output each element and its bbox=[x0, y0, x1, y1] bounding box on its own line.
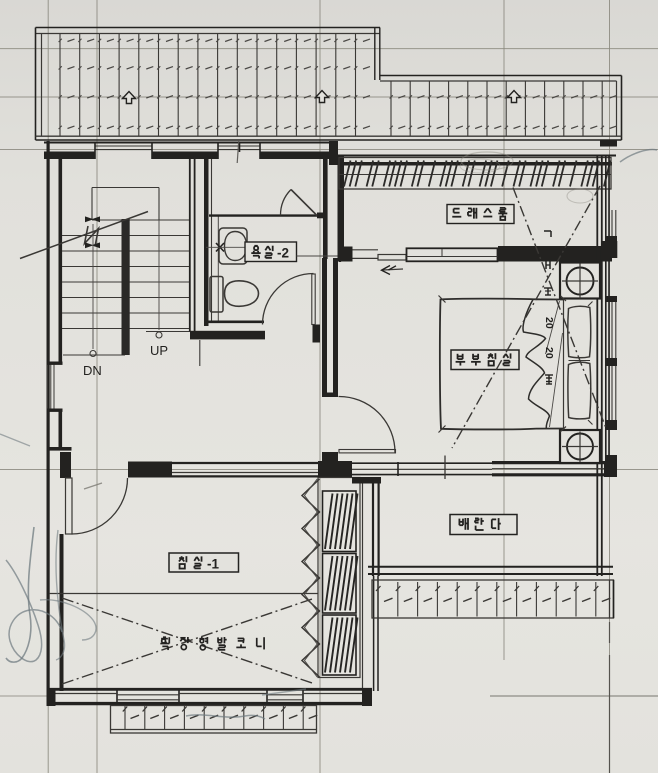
svg-text:-1: -1 bbox=[207, 557, 219, 572]
svg-text:20: 20 bbox=[543, 317, 555, 329]
svg-text:20: 20 bbox=[543, 347, 555, 359]
svg-text:DN: DN bbox=[83, 363, 102, 378]
svg-text:UP: UP bbox=[150, 343, 168, 358]
svg-text:-2: -2 bbox=[277, 246, 289, 261]
